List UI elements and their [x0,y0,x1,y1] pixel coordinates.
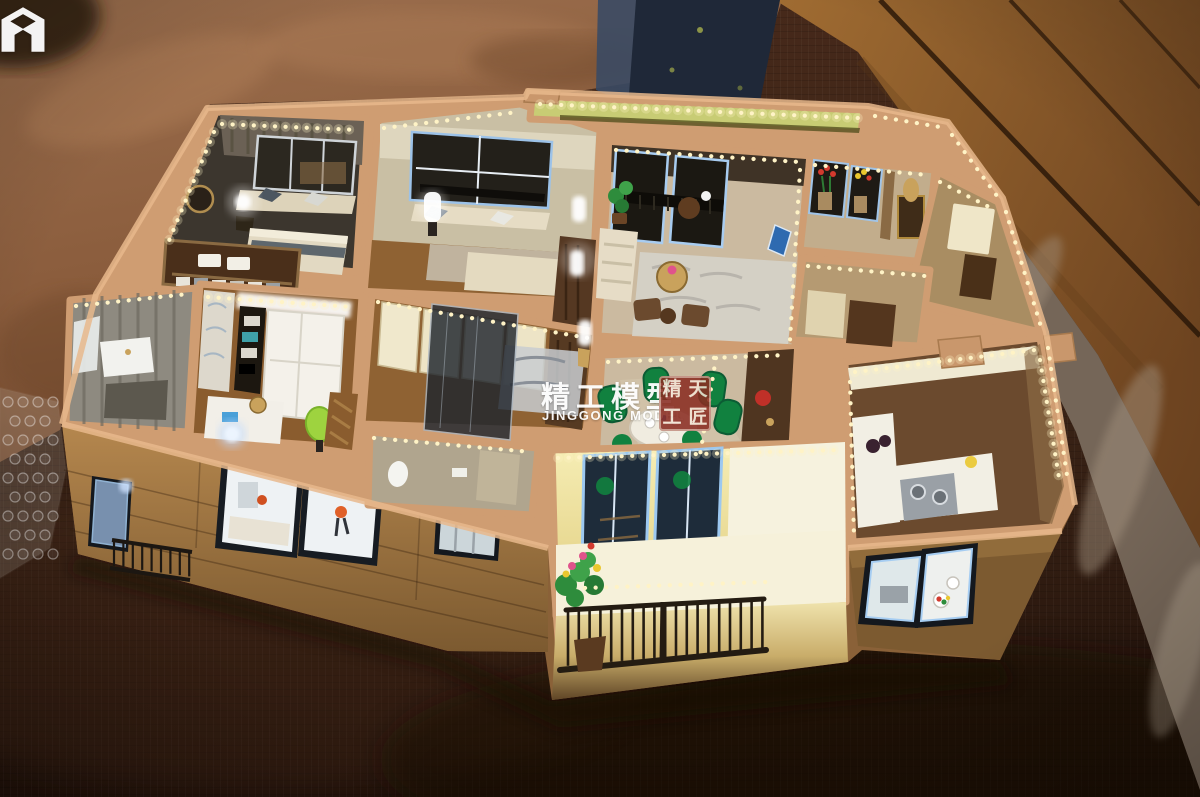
vignette [0,0,1200,797]
scale-model [0,0,1200,797]
scene-canvas [0,0,1200,797]
photo-architectural-scale-model: 精工模型 JINGGONG MODEL 精 天 工 匠 [0,0,1200,797]
